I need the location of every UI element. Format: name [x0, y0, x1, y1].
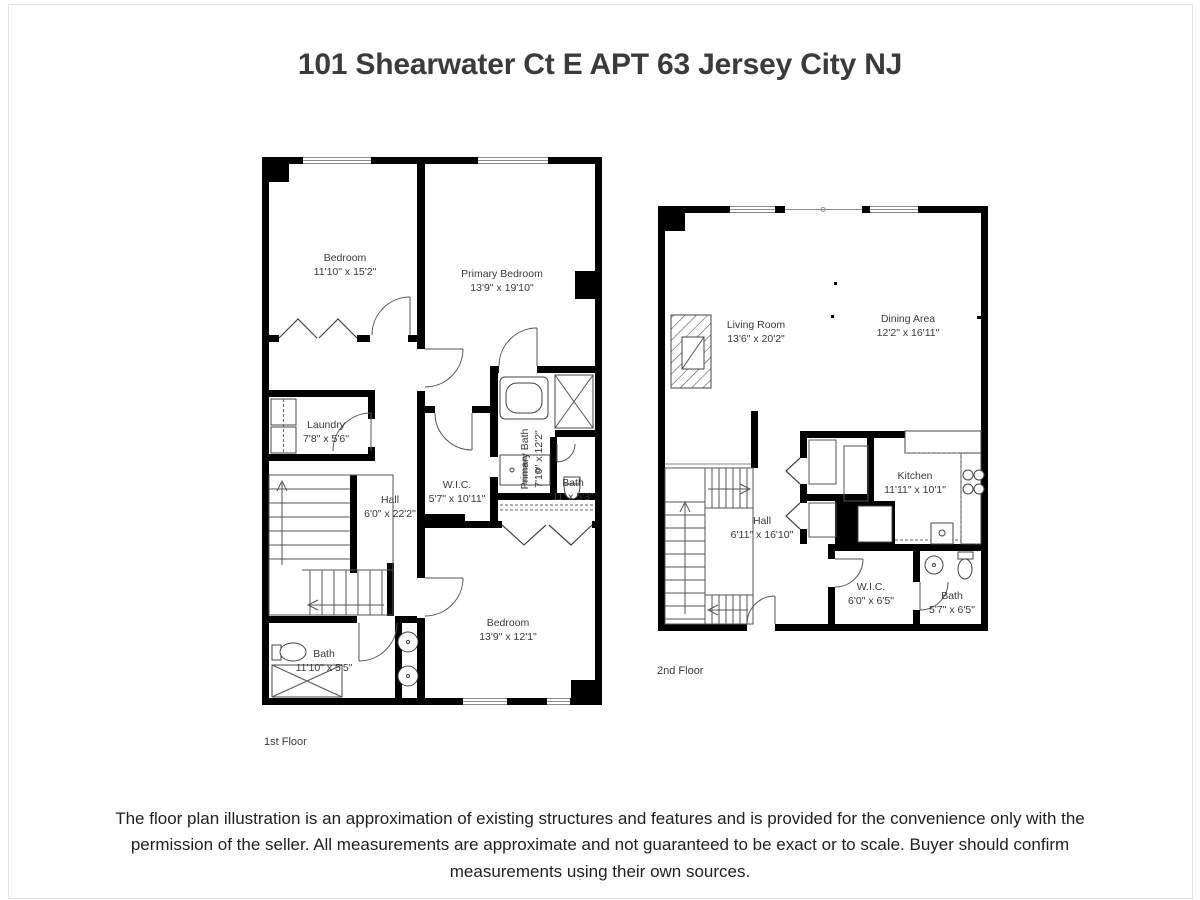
room-label-bedroom1-dims: 11'10" x 15'2"	[314, 266, 377, 278]
room-label-primary-bedroom-dims: 13'9" x 19'10"	[470, 282, 534, 294]
room-label-hall-name: Hall	[381, 494, 399, 506]
window	[463, 698, 507, 705]
window	[478, 157, 548, 164]
first-floor-caption: 1st Floor	[264, 736, 307, 748]
room-label-laundry-dims: 7'8" x 5'6"	[303, 433, 349, 445]
room-label-dining-area-name: Dining Area	[881, 313, 935, 325]
refrigerator-icon	[844, 446, 868, 501]
window	[547, 698, 570, 705]
sink-icon	[925, 556, 943, 574]
footnote-dot: .	[0, 872, 1160, 883]
room-label-bath-bl-dims: 11'10" x 5'5"	[296, 662, 353, 674]
first-floor-plan: Bedroom 11'10" x 15'2" Primary Bedroom 1…	[262, 153, 602, 711]
room-label-dining-area-dims: 12'2" x 16'11"	[877, 327, 940, 339]
room-label-bath-bl-name: Bath	[313, 648, 335, 660]
door-swing-icon	[425, 349, 463, 387]
room-label-bedroom2-dims: 13'9" x 12'1"	[479, 631, 537, 643]
room-label-wic-name: W.I.C.	[443, 479, 472, 491]
room-label-primary-bedroom-name: Primary Bedroom	[461, 268, 543, 280]
room-label-kitchen-dims: 11'11" x 10'1"	[884, 484, 946, 496]
staircase-icon	[269, 475, 393, 615]
bathtub-icon	[500, 377, 548, 419]
washer-dryer-icon	[271, 399, 296, 453]
room-label-wic2-dims: 6'0" x 6'5"	[848, 595, 894, 607]
closet-doors	[279, 319, 593, 545]
room-label-kitchen-name: Kitchen	[897, 470, 932, 482]
second-floor-caption: 2nd Floor	[657, 665, 703, 677]
fireplace-icon	[671, 315, 711, 388]
door-swing-icon	[359, 623, 397, 661]
room-label-bedroom1-name: Bedroom	[324, 252, 367, 264]
door-swing-icon	[557, 444, 575, 462]
room-label-living-room-name: Living Room	[727, 319, 786, 331]
door-swing-icon	[747, 596, 775, 624]
room-label-primary-bath-dims: 7'10" x 12'2"	[533, 430, 545, 488]
bifold-door-icon	[786, 458, 800, 484]
bifold-door-icon	[279, 319, 357, 338]
bifold-door-icon	[786, 503, 800, 529]
room-label-wic-dims: 5'7" x 10'11"	[429, 493, 486, 505]
toilet-icon	[958, 552, 973, 579]
appliance-icon	[931, 523, 953, 544]
room-label-bath2-name: Bath	[941, 590, 963, 602]
window	[303, 157, 371, 164]
door-swing-icon	[435, 413, 472, 450]
room-label-laundry-name: Laundry	[307, 419, 346, 431]
room-label-hall2-name: Hall	[753, 515, 771, 527]
room-label-bath-small-dims: 11' x 5'3"	[552, 491, 594, 503]
shower-icon	[555, 375, 593, 428]
door-swing-icon	[499, 328, 537, 366]
door-swing-icon	[425, 578, 463, 616]
door-swing-icon	[372, 297, 410, 335]
window	[870, 206, 918, 213]
room-label-living-room-dims: 13'6" x 20'2"	[727, 333, 785, 345]
kitchen-counter	[905, 431, 981, 453]
room-label-hall2-dims: 6'11" x 16'10"	[731, 529, 794, 541]
bath-fixtures	[925, 552, 973, 579]
room-label-bath-small-name: Bath	[562, 477, 584, 489]
staircase-icon	[665, 468, 753, 624]
room-label-wic2-name: W.I.C.	[857, 581, 886, 593]
page-title: 101 Shearwater Ct E APT 63 Jersey City N…	[0, 48, 1200, 82]
window	[730, 206, 775, 213]
bifold-door-icon	[502, 525, 592, 545]
floor-plan-page: 101 Shearwater Ct E APT 63 Jersey City N…	[0, 0, 1200, 900]
toilet-icon	[272, 643, 306, 661]
room-label-primary-bath-name: Primary Bath	[519, 429, 531, 490]
kitchen-counter	[961, 453, 981, 544]
walls	[262, 157, 602, 705]
room-label-bedroom2-name: Bedroom	[487, 617, 530, 629]
room-label-hall-dims: 6'0" x 22'2"	[364, 508, 416, 520]
second-floor-plan: Living Room 13'6" x 20'2" Dining Area 12…	[658, 206, 988, 638]
room-label-bath2-dims: 5'7" x 6'5"	[929, 604, 975, 616]
